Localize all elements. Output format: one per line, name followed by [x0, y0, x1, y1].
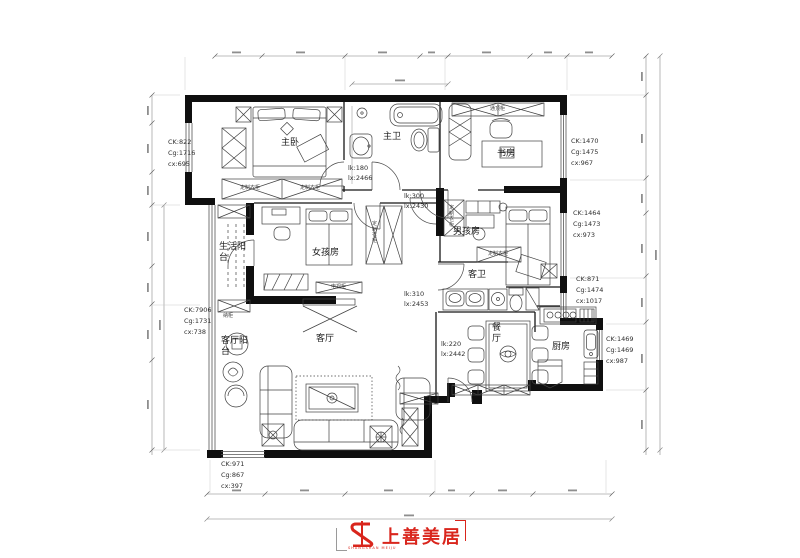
room-label-dining: 餐厅 — [492, 323, 503, 345]
wardrobe-label-master-1: 定制衣柜 — [240, 186, 260, 192]
logo-corner-left — [336, 528, 347, 551]
room-label-study: 书房 — [497, 149, 515, 160]
boys-room-furniture — [444, 200, 550, 285]
tv-cabinet-label: 电视柜 — [331, 285, 346, 291]
wardrobe-label-girls: 定制衣柜 — [372, 222, 379, 244]
brand-logo: 上善美居 SHANGSHAN MEIJU — [336, 520, 466, 554]
room-label-living-balcony: 生活阳台 — [219, 242, 249, 264]
floorplan-linework — [0, 0, 800, 558]
extension-lines — [153, 57, 645, 493]
opening-annotation-3: lk:310 lx:2453 — [404, 290, 428, 310]
window-annotation-kitchen: CK:1469 Cg:1469 cx:987 — [606, 334, 634, 367]
floor-plan-sheet: 主卧 主卫 书房 男孩房 女孩房 生活阳台 客厅阳台 客厅 客卫 餐厅 厨房 C… — [0, 0, 800, 558]
opening-annotation-1: lk:180 lx:2466 — [348, 164, 372, 184]
logo-s-mark — [348, 521, 378, 547]
window-annotation-left-top: CK:822 Cg:1716 cx:695 — [168, 137, 195, 170]
wardrobe-label-master-2: 定制衣柜 — [300, 186, 320, 192]
room-label-kitchen: 厨房 — [552, 342, 570, 353]
cabinet-label-study-top: 通顶柜 — [490, 107, 505, 113]
room-label-living-room: 客厅 — [316, 334, 334, 345]
window-annotation-bottom: CK:971 Cg:867 cx:397 — [221, 459, 244, 492]
opening-annotation-4: lk:220 lx:2442 — [441, 340, 465, 360]
room-label-girls-room: 女孩房 — [312, 248, 339, 259]
room-label-guest-bath: 客卫 — [468, 270, 486, 281]
opening-annotation-2: lk:300 lx:2430 — [404, 192, 428, 212]
room-label-living-room-balcony: 客厅阳台 — [221, 336, 251, 358]
logo-sub-text: SHANGSHAN MEIJU — [348, 546, 396, 550]
room-label-master-bedroom: 主卧 — [281, 138, 299, 149]
balcony-items — [218, 205, 250, 407]
window-annotation-right-top: CK:1470 Cg:1475 cx:967 — [571, 136, 599, 169]
wardrobe-label-boys: 定制衣柜 — [449, 206, 456, 228]
room-label-boys-room: 男孩房 — [453, 227, 480, 238]
cabinet-label-balcony: 纳柜 — [223, 314, 233, 320]
cabinet-label-boys-bottom: 定制衣柜 — [488, 252, 508, 258]
window-annotation-left-mid: CK:7906 Cg:1731 cx:738 — [184, 305, 212, 338]
room-label-master-bath: 主卫 — [383, 132, 401, 143]
walls — [185, 95, 603, 458]
window-annotation-right-low: CK:871 Cg:1474 cx:1017 — [576, 274, 603, 307]
window-annotation-right-mid: CK:1464 Cg:1473 cx:973 — [573, 208, 601, 241]
